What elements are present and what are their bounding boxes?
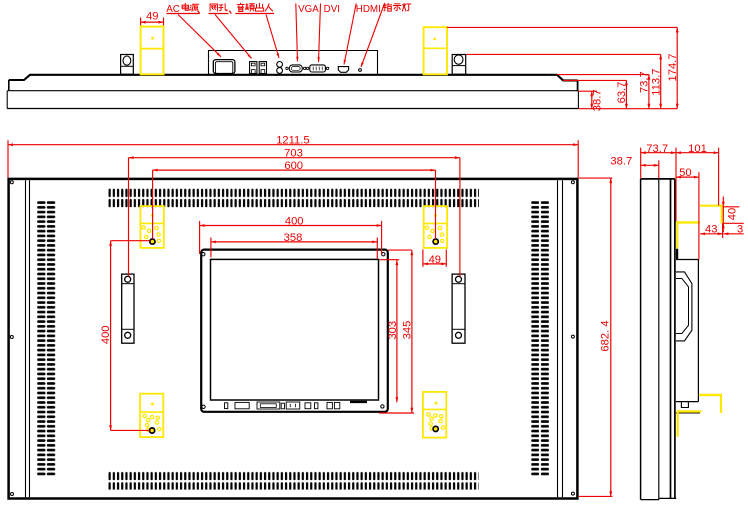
svg-text:73.7: 73.7 [646,143,668,155]
svg-text:174.7: 174.7 [667,54,679,82]
svg-text:HDMI: HDMI [356,4,381,15]
svg-text:703: 703 [284,148,303,160]
svg-text:63.7: 63.7 [616,82,628,104]
svg-text:1211.5: 1211.5 [276,135,309,147]
svg-text:303: 303 [387,321,399,340]
svg-text:113.7: 113.7 [651,69,663,96]
svg-text:400: 400 [285,215,304,227]
svg-text:400: 400 [100,325,112,344]
svg-text:345: 345 [402,321,414,340]
svg-text:73.7: 73.7 [639,71,651,93]
svg-text:38.7: 38.7 [591,89,603,111]
svg-text:43: 43 [705,224,717,236]
svg-text:358: 358 [284,232,303,244]
svg-text:40: 40 [727,208,739,220]
svg-text:50: 50 [679,167,691,179]
svg-text:49: 49 [429,254,441,266]
svg-text:3: 3 [737,224,743,236]
svg-text:600: 600 [284,160,303,172]
svg-text:682. 4: 682. 4 [600,320,612,351]
svg-text:38.7: 38.7 [610,156,632,168]
svg-text:49: 49 [146,11,158,23]
svg-text:VGA: VGA [298,4,319,15]
svg-text:DVI: DVI [324,4,340,15]
svg-text:101: 101 [688,143,707,155]
